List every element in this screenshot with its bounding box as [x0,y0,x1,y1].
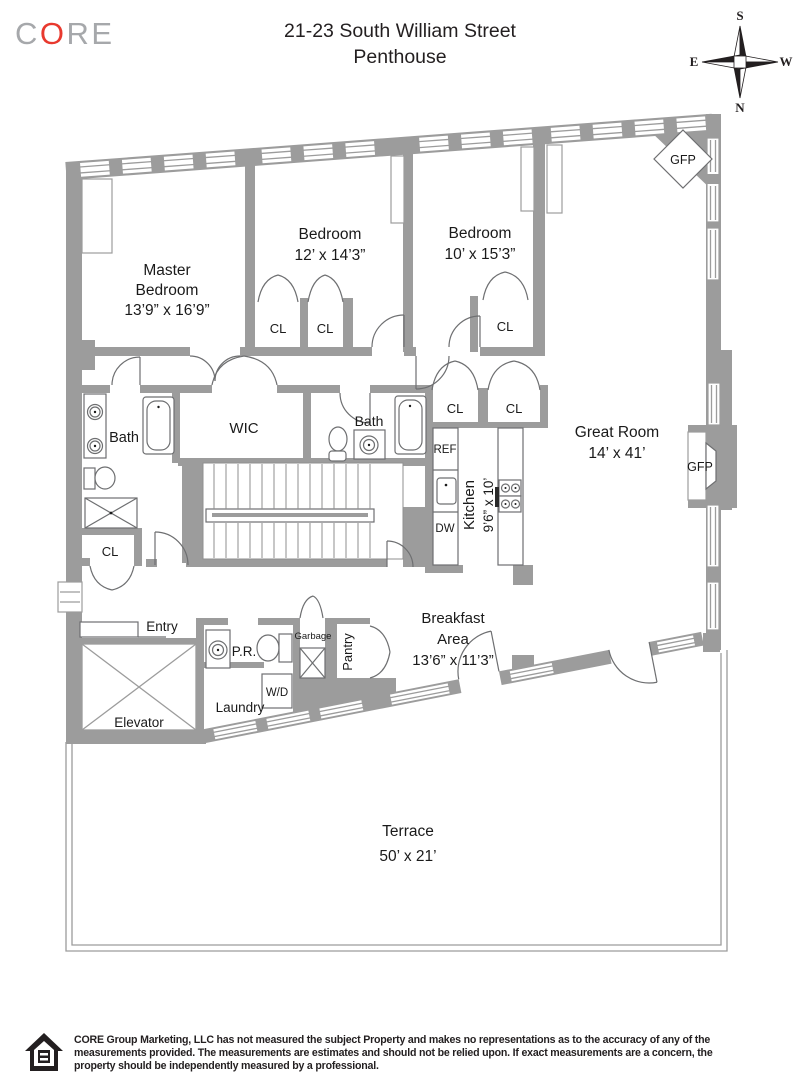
room-label-terrace: Terrace [382,823,434,840]
label-gfp-right: GFP [687,460,713,474]
closet-label-3: CL [497,319,514,334]
disclaimer-text: CORE Group Marketing, LLC has not measur… [74,1034,734,1073]
disclaimer-line-3: property should be independently measure… [74,1060,734,1073]
closet-label-5: CL [506,401,523,416]
room-label-terrace-dims: 50’ x 21’ [379,848,436,865]
page-title: 21-23 South William Street Penthouse [0,18,800,70]
room-label-kitchen: Kitchen [461,480,478,530]
room-label-master-2: Bedroom [136,282,199,299]
room-label-breakfast-dims: 13’6” x 11’3” [412,652,493,669]
room-label-bedroom2: Bedroom [299,226,362,243]
room-label-elevator: Elevator [114,715,164,730]
room-label-kitchen-dims: 9’6” x 10’ [481,478,496,533]
closet-label-1: CL [270,321,287,336]
room-label-breakfast-1: Breakfast [421,610,485,627]
room-label-bath2: Bath [355,413,384,429]
room-label-bedroom3-dims: 10’ x 15’3” [445,246,516,263]
toilet-icon [329,427,347,451]
room-label-entry: Entry [146,619,178,634]
room-label-great-room: Great Room [575,424,659,441]
room-label-pr: P.R. [232,644,257,659]
kitchen-sink-icon [437,478,456,504]
room-label-bedroom2-dims: 12’ x 14’3” [295,247,366,264]
room-label-laundry: Laundry [216,700,265,715]
label-washer-dryer: W/D [266,687,288,699]
label-refrigerator: REF [434,444,457,456]
room-label-master-bath: Bath [109,430,139,446]
closet-label-6: CL [102,544,119,559]
room-label-wic: WIC [229,420,258,437]
equal-housing-icon [25,1033,63,1071]
garbage-chute [300,648,325,678]
room-label-great-room-dims: 14’ x 41’ [588,445,645,462]
master-bath [84,394,174,528]
floor-plan: S N E W [0,0,800,1080]
label-garbage: Garbage [295,631,332,642]
room-label-master-dims: 13’9” x 16’9” [124,302,209,319]
title-address: 21-23 South William Street [0,18,800,44]
room-label-breakfast-2: Area [437,631,469,648]
room-label-master-1: Master [143,262,190,279]
toilet-icon [84,468,95,489]
compass-north: N [735,100,745,115]
staircase [203,463,403,559]
disclaimer-line-1: CORE Group Marketing, LLC has not measur… [74,1034,734,1047]
closet-label-2: CL [317,321,334,336]
disclaimer-line-2: measurements provided. The measurements … [74,1047,734,1060]
closet-label-4: CL [447,401,464,416]
toilet-icon [257,635,279,661]
top-window-wall [65,114,713,180]
label-gfp-corner: GFP [670,153,696,167]
label-dishwasher: DW [435,523,454,535]
floorplan-page: CORE 21-23 South William Street Penthous… [0,0,800,1080]
room-label-bedroom3: Bedroom [449,225,512,242]
room-label-pantry: Pantry [340,633,355,671]
title-unit: Penthouse [0,44,800,70]
